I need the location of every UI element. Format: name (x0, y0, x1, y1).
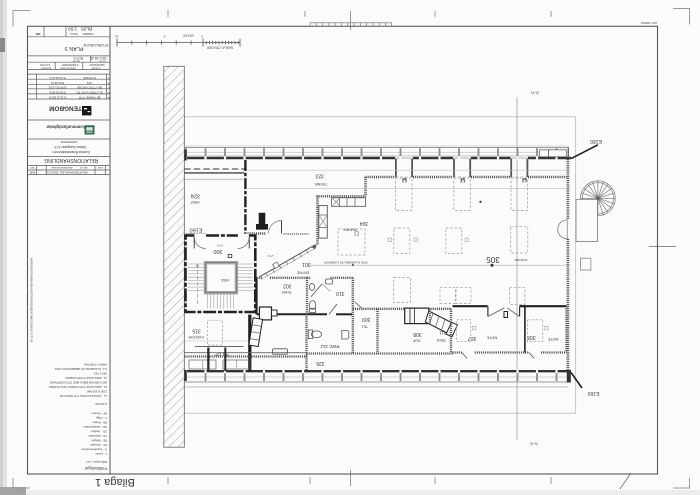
svg-text:300: 300 (214, 248, 223, 254)
svg-text:301: 301 (302, 261, 311, 267)
svg-text:TENGBOM: TENGBOM (49, 104, 82, 111)
svg-text:326: 326 (316, 360, 325, 366)
svg-text:L2 - RAKLUCKA TYP GYPROC GFG P: L2 - RAKLUCKA TYP GYPROC GFG PLANEX (49, 385, 107, 389)
svg-text:BET: BET (29, 166, 34, 168)
svg-text:310: 310 (336, 290, 345, 296)
svg-text:E: E (108, 96, 110, 100)
svg-text:RD - Rökdet: RD - Rökdet (91, 439, 107, 443)
svg-text:NUMMER: NUMMER (82, 32, 93, 35)
svg-text:BK YTTR DYRO BB: BK YTTR DYRO BB (77, 86, 101, 90)
svg-text:L3 - RAKLUCKA TYP BYGGEMA: L3 - RAKLUCKA TYP BYGGEMA (65, 376, 107, 380)
svg-text:A-A: A-A (529, 441, 538, 447)
svg-text:FRÅN YTTERTAK: FRÅN YTTERTAK (84, 363, 107, 368)
svg-text:SARL: SARL (29, 170, 36, 173)
svg-text:324: 324 (191, 193, 200, 199)
svg-text:RELATIONSHANDLING: RELATIONSHANDLING (44, 157, 98, 163)
svg-text:308: 308 (413, 331, 422, 337)
svg-text:315: 315 (192, 328, 201, 334)
svg-text:940 X 700: 940 X 700 (94, 372, 107, 376)
svg-text:B 01-06-12 S: B 01-06-12 S (49, 76, 65, 80)
svg-text:+7,4: +7,4 (217, 243, 223, 247)
svg-text:TEKN: TEKN (436, 338, 446, 342)
svg-text:TEKNIK: TEKNIK (314, 182, 328, 186)
svg-text:1200 X 600 MM: 1200 X 600 MM (87, 390, 107, 394)
svg-text:0987500048: 0987500048 (60, 140, 77, 144)
svg-text:KONTOR: KONTOR (514, 258, 528, 262)
svg-text:BK TAMME YTTR: BK TAMME YTTR (79, 95, 101, 99)
svg-text:IL1 - PLACERAD PÅ NEDERVÅGG VI: IL1 - PLACERAD PÅ NEDERVÅGG VIGG (55, 367, 107, 372)
svg-text:PLAN 3: PLAN 3 (65, 45, 84, 51)
svg-text:DATUM: DATUM (80, 166, 88, 169)
svg-text:EL UTRED VÄGG FD: EL UTRED VÄGG FD (76, 91, 102, 95)
svg-text:+7,4: +7,4 (267, 254, 273, 258)
svg-text:BYGG: BYGG (99, 59, 105, 61)
svg-text:A-A: A-A (530, 89, 539, 95)
svg-text:Mått anges i mm.: Mått anges i mm. (85, 460, 107, 464)
svg-text:A: A (108, 82, 110, 86)
svg-text:L1 - VIKGOLVLUCKA TYP NAVA STD: L1 - VIKGOLVLUCKA TYP NAVA STD (60, 394, 107, 398)
svg-text:10: 10 (115, 34, 119, 38)
svg-text:KOP: KOP (412, 339, 420, 343)
svg-text:306: 306 (527, 334, 536, 340)
svg-text:LUCKOR: LUCKOR (95, 402, 107, 406)
svg-text:S RAMSTEDT: S RAMSTEDT (61, 63, 79, 67)
svg-text:ÄNDRINGEN AVSER: ÄNDRINGEN AVSER (51, 166, 72, 169)
svg-text:SKALA 1:50 E160: SKALA 1:50 E160 (207, 46, 234, 50)
svg-text:VVS: VVS (87, 81, 93, 85)
svg-text:323: 323 (315, 173, 324, 179)
svg-text:GRANSKAD: GRANSKAD (89, 63, 104, 67)
svg-text:800 X 800 MM BRA/1 MED TRYCKÖP: 800 X 800 MM BRA/1 MED TRYCKÖPPNING (50, 381, 107, 385)
svg-text:LKP 10/5/16: LKP 10/5/16 (640, 21, 657, 25)
svg-text:D: D (108, 91, 110, 95)
svg-text:L - Lucka: L - Lucka (95, 452, 107, 456)
svg-text:DATUM: DATUM (73, 59, 81, 62)
svg-text:METER: METER (182, 33, 193, 37)
svg-text:MÖTE: MÖTE (486, 335, 497, 339)
svg-text:B 11-10 B/G B: B 11-10 B/G B (49, 95, 66, 99)
svg-text:S: S (108, 76, 110, 80)
svg-text:RELATIONSHANDLING: RELATIONSHANDLING (60, 171, 88, 175)
svg-text:Kommunfastigheter: Kommunfastigheter (46, 124, 86, 129)
svg-text:B 05-021-12 B: B 05-021-12 B (49, 86, 67, 90)
svg-text:NF - Fönster: NF - Fönster (91, 412, 107, 416)
svg-text:Gamla Brandstationen: Gamla Brandstationen (52, 150, 90, 154)
svg-text:E160: E160 (590, 138, 602, 144)
svg-text:TEKN: TEKN (282, 290, 292, 294)
svg-text:STÄD ALLMÄNBELYSN & ARMATUR: STÄD ALLMÄNBELYSN & ARMATUR (324, 260, 368, 264)
svg-text:Bilaga 1: Bilaga 1 (95, 476, 135, 488)
svg-text:HISS: HISS (220, 278, 229, 282)
svg-text:309: 309 (362, 316, 371, 322)
svg-text:ENTRE: ENTRE (296, 270, 309, 274)
svg-text:M:\PROJEKT\GAMLA BRANDSTATIONE: M:\PROJEKT\GAMLA BRANDSTATIONEN\BL05.DWG… (30, 258, 34, 343)
svg-text:Västra Gravgatan 3:12: Västra Gravgatan 3:12 (54, 145, 86, 149)
svg-text:SKALA: SKALA (70, 32, 78, 35)
svg-text:1:50: 1:50 (68, 27, 77, 32)
svg-text:RWC 312: RWC 312 (320, 344, 340, 349)
svg-text:C: C (108, 86, 110, 90)
svg-text:TEL: TEL (361, 324, 368, 328)
svg-text:ANSVARIG: ANSVARIG (40, 67, 51, 70)
svg-text:RITAD AV: RITAD AV (91, 67, 100, 70)
svg-text:B 09-05-09 B: B 09-05-09 B (49, 91, 65, 95)
svg-text:IL - Inspektionslucka: IL - Inspektionslucka (81, 448, 107, 452)
svg-text:HANDLÄGGARE: HANDLÄGGARE (60, 67, 76, 70)
svg-text:B 02-68-18: B 02-68-18 (50, 81, 64, 85)
svg-text:SIGN: SIGN (97, 166, 103, 168)
svg-text:2018-01-15: 2018-01-15 (46, 170, 59, 173)
svg-text:GF - Gasvarn: GF - Gasvarn (90, 443, 107, 447)
svg-text:B TAMME: B TAMME (83, 76, 95, 80)
svg-text:E160: E160 (588, 390, 600, 396)
svg-text:307: 307 (468, 335, 477, 341)
svg-text:VENT: VENT (189, 200, 199, 204)
svg-text:TD - Värmedet: TD - Värmedet (88, 434, 107, 438)
svg-text:VD - Jordvärmedet: VD - Jordvärmedet (83, 425, 107, 429)
svg-text:STORA DELEN: STORA DELEN (83, 43, 109, 47)
svg-text:PD - Pelare: PD - Pelare (92, 421, 107, 425)
svg-text:PENTRY: PENTRY (343, 227, 357, 231)
svg-text:302: 302 (283, 282, 292, 288)
svg-text:305: 305 (486, 255, 500, 264)
svg-text:E160: E160 (190, 226, 203, 232)
svg-text:304: 304 (360, 220, 369, 226)
svg-text:MÖTE: MÖTE (547, 337, 558, 341)
svg-text:Förklaringar: Förklaringar (84, 466, 107, 471)
svg-text:BL05: BL05 (81, 26, 93, 32)
svg-text:K.KVIST: K.KVIST (39, 63, 50, 67)
svg-text:V - Vägg: V - Vägg (96, 416, 107, 420)
svg-text:KONTOR: KONTOR (188, 335, 204, 339)
svg-text:311: 311 (439, 331, 447, 336)
svg-text:SD - Jorddet: SD - Jorddet (91, 430, 107, 434)
